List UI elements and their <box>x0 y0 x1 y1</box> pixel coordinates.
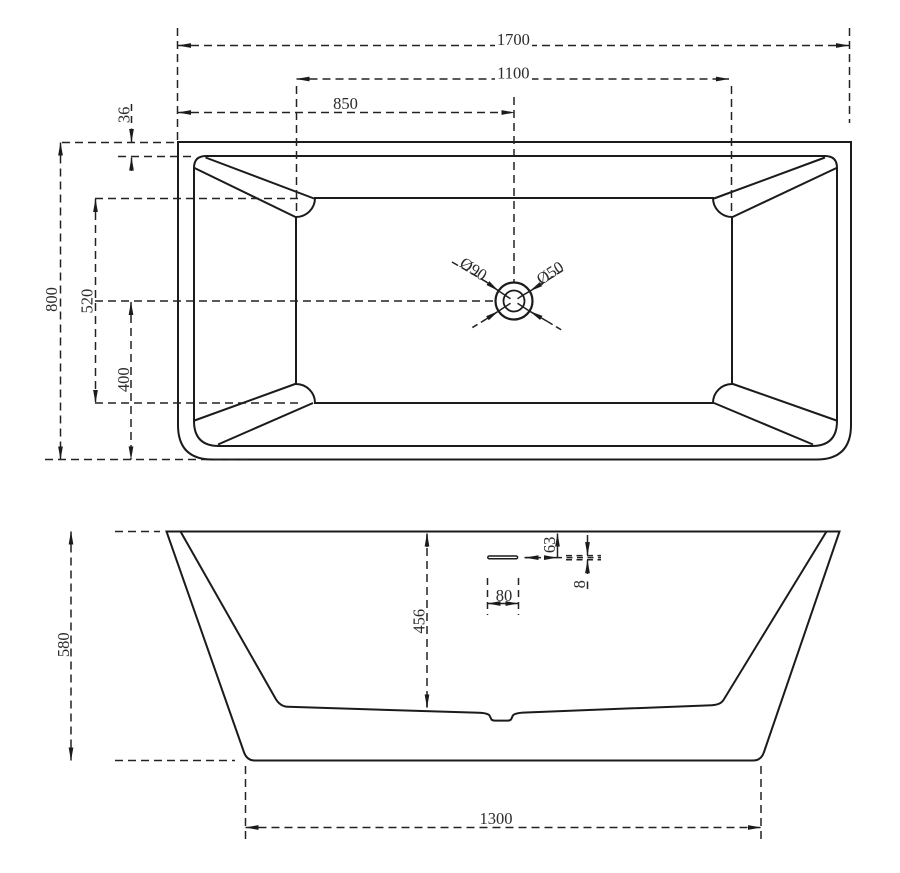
svg-text:1100: 1100 <box>497 63 529 82</box>
svg-text:Ø90: Ø90 <box>456 253 490 284</box>
svg-text:850: 850 <box>333 94 358 113</box>
svg-text:36: 36 <box>115 107 134 124</box>
svg-text:Ø50: Ø50 <box>533 257 567 288</box>
svg-text:580: 580 <box>54 632 73 657</box>
svg-text:456: 456 <box>410 609 429 634</box>
svg-text:8: 8 <box>570 580 589 588</box>
svg-text:63: 63 <box>540 537 559 554</box>
svg-text:1300: 1300 <box>480 809 513 828</box>
svg-text:1700: 1700 <box>497 30 530 49</box>
svg-text:400: 400 <box>114 367 133 392</box>
svg-text:800: 800 <box>42 287 61 312</box>
svg-text:520: 520 <box>78 289 97 314</box>
svg-text:80: 80 <box>496 586 513 605</box>
